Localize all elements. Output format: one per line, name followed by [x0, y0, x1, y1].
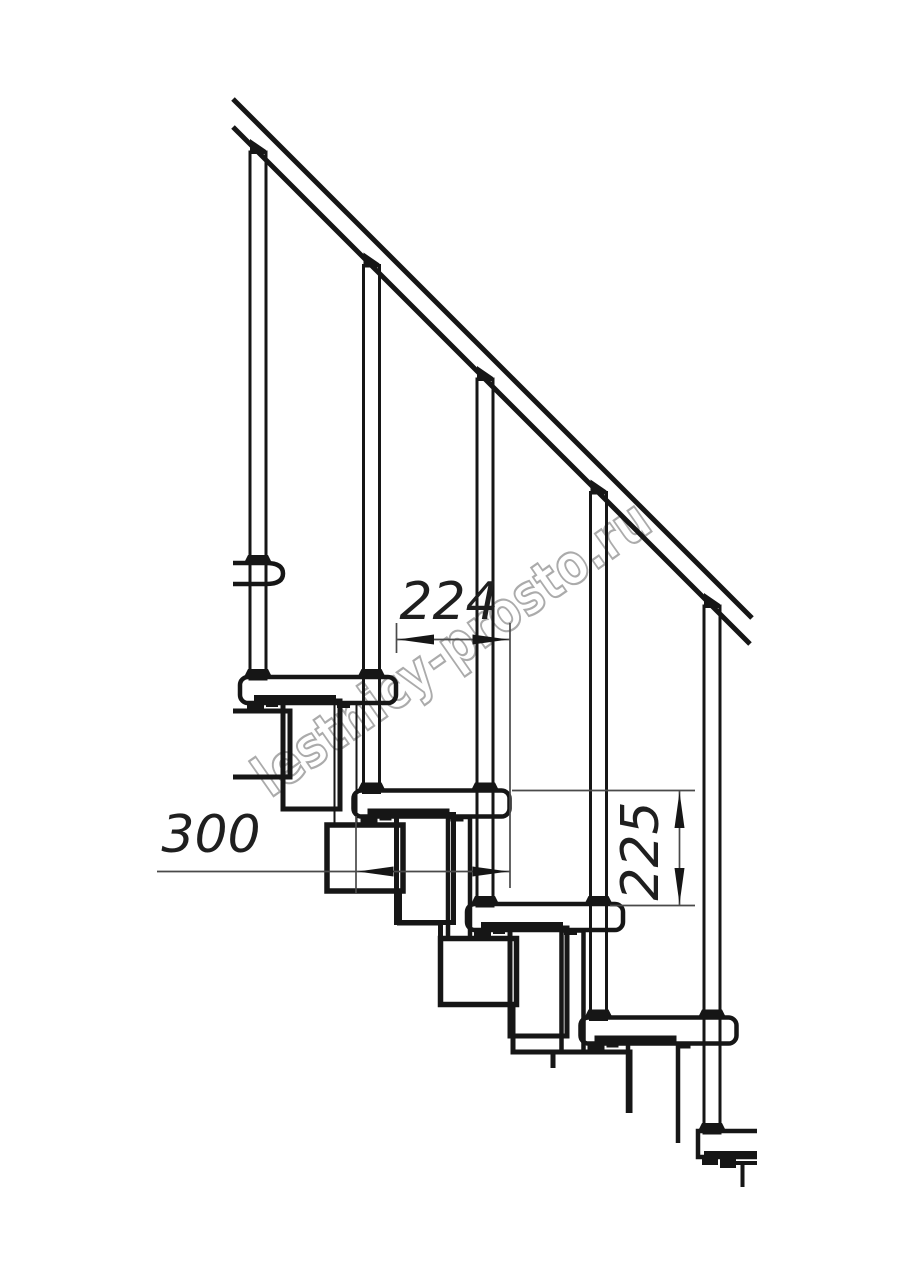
- watermark: lestnicy-prosto.ru: [241, 487, 663, 810]
- module-link-3-4: [513, 1005, 553, 1053]
- dimension-225-label: 225: [611, 801, 671, 900]
- module-square-2: [327, 825, 403, 891]
- watermark-text: lestnicy-prosto.ru: [241, 487, 663, 810]
- module-foot-lines: [735, 1163, 757, 1187]
- dimension-224-label: 224: [399, 572, 498, 632]
- tread-1-stub: [233, 563, 283, 584]
- module-riser-4-partial: [628, 1044, 678, 1143]
- dimension-300-label: 300: [161, 805, 260, 865]
- module-square-3: [441, 939, 517, 1005]
- dimension-rise-225: 225: [512, 791, 695, 906]
- staircase-drawing: lestnicy-prosto.ru: [0, 0, 914, 1280]
- module-square-4-partial: [553, 1052, 630, 1113]
- baluster-5: [704, 606, 720, 1133]
- module-link-2-3: [400, 891, 441, 939]
- baluster-1: [250, 152, 266, 679]
